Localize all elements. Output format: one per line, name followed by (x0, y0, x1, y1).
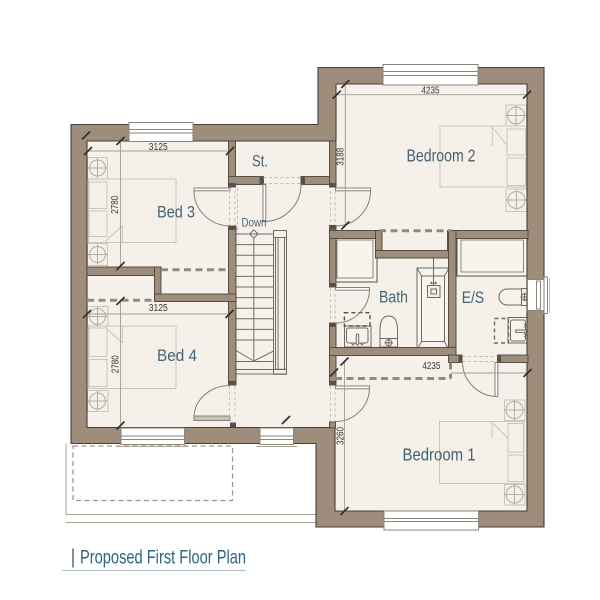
svg-text:Bed 3: Bed 3 (157, 203, 195, 222)
svg-text:Bedroom 1: Bedroom 1 (403, 445, 476, 465)
svg-text:E/S: E/S (462, 288, 485, 307)
svg-text:2780: 2780 (110, 355, 121, 373)
svg-text:Bed 4: Bed 4 (157, 346, 197, 365)
svg-text:4235: 4235 (422, 86, 440, 97)
svg-text:3125: 3125 (149, 142, 168, 153)
svg-text:St.: St. (252, 152, 268, 171)
svg-text:Proposed First Floor Plan: Proposed First Floor Plan (80, 547, 246, 569)
svg-text:Bath: Bath (379, 288, 408, 307)
svg-text:3188: 3188 (335, 147, 346, 165)
svg-text:2780: 2780 (110, 195, 121, 213)
svg-text:Down: Down (242, 218, 267, 230)
svg-text:Bedroom 2: Bedroom 2 (407, 146, 476, 166)
svg-text:4235: 4235 (422, 361, 440, 372)
svg-text:3125: 3125 (149, 303, 168, 314)
svg-text:3260: 3260 (335, 427, 346, 445)
